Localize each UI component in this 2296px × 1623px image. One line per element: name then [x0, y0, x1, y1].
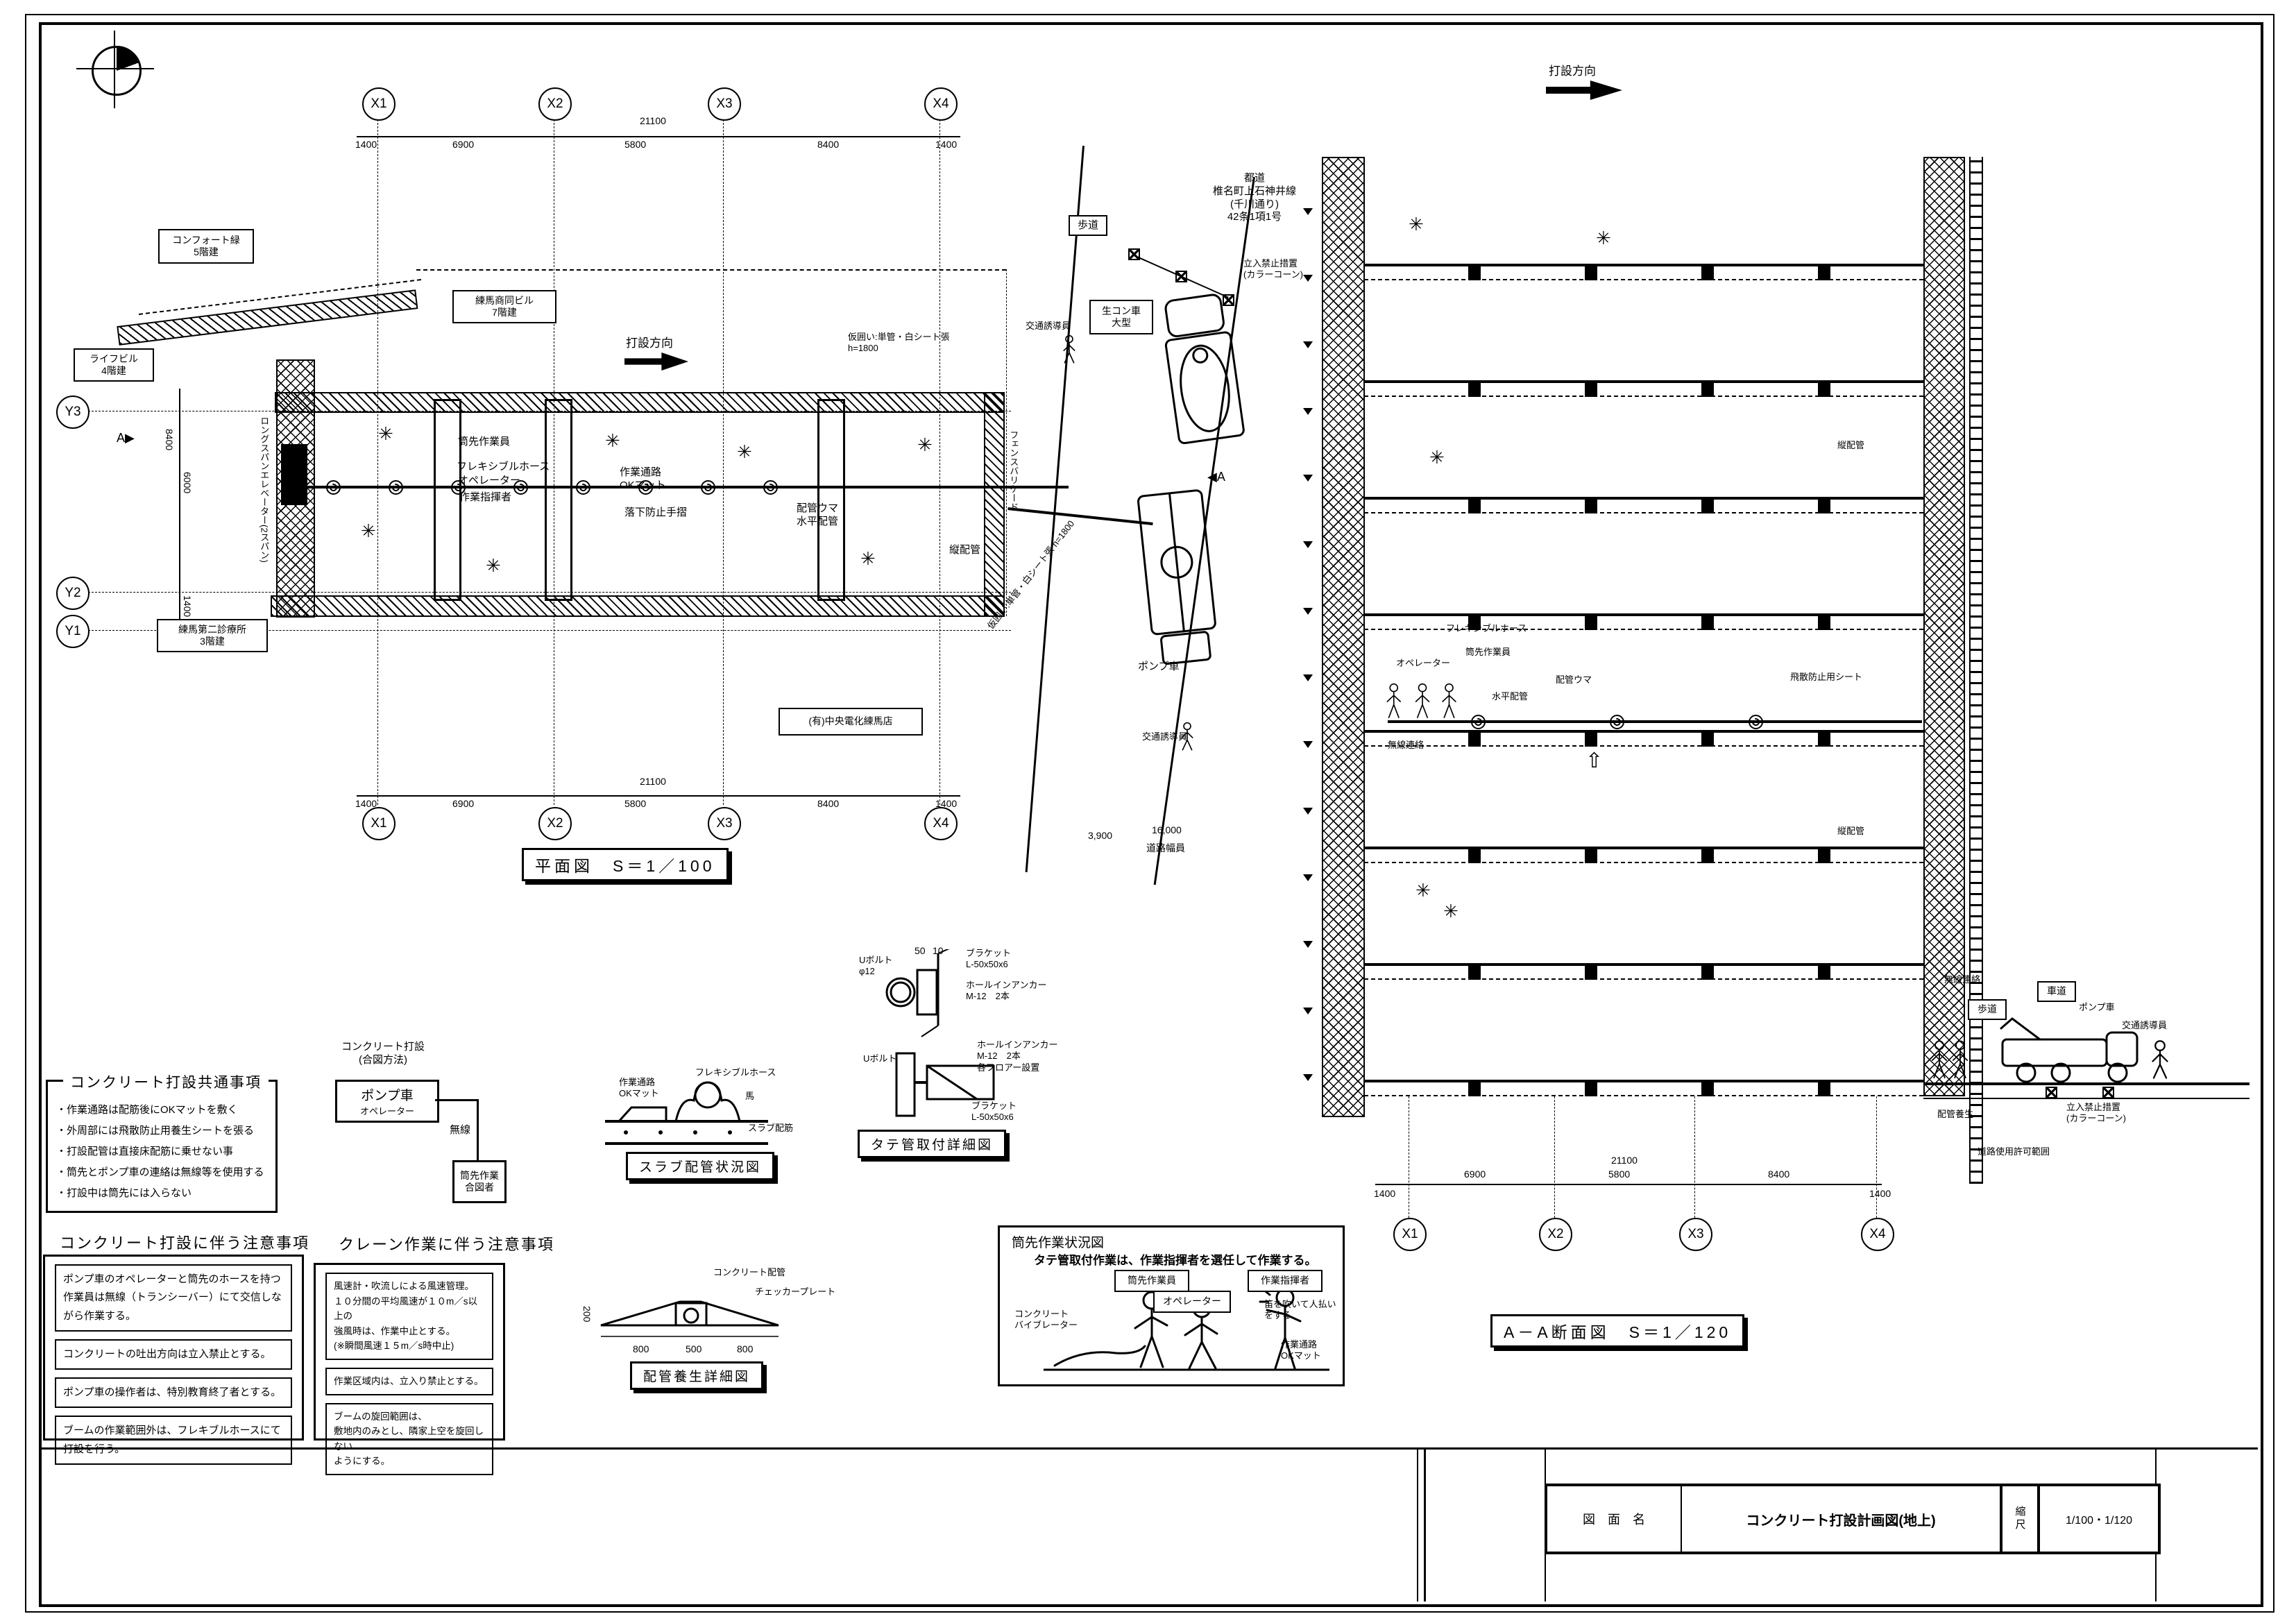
- level-mark: [1303, 341, 1313, 348]
- section-ground-line2: [1923, 1098, 2250, 1099]
- section-label-roadway: 車道: [2037, 981, 2076, 1002]
- section-label-riser1: 縦配管: [1837, 440, 1864, 451]
- road-route-label: 都道 椎名町上石神井線 (千川通り) 42条1項1号: [1213, 172, 1296, 224]
- section-dim-x1x2: 6900: [1464, 1169, 1486, 1180]
- section-dim-x2x3: 5800: [1608, 1169, 1630, 1180]
- pump-truck-plan: [1122, 481, 1237, 670]
- note-box: ポンプ車のオペレーターと筒先のホースを持つ 作業員は無線（トランシーバー）にて交…: [55, 1264, 292, 1332]
- detail-riser-anchor-lower-label: ホールインアンカー M-12 2本 各フロアー設置: [977, 1039, 1057, 1073]
- traffic-cone-icon: [1175, 271, 1187, 282]
- concrete-splash-icon: ✳: [1443, 902, 1459, 920]
- operator-tag: オペレーター: [1153, 1291, 1231, 1313]
- detail-slab-rebar-label: スラブ配筋: [748, 1123, 793, 1134]
- plan-label-pipe-horse: 配管ウマ 水平配管: [797, 502, 838, 529]
- section-scaffold-right: [1923, 157, 1965, 1096]
- level-mark: [1303, 808, 1313, 815]
- note-item: ・外周部には飛散防止用養生シートを張る: [56, 1123, 267, 1137]
- concrete-splash-icon: ✳: [737, 443, 752, 461]
- mixer-truck-label: 生コン車 大型: [1089, 300, 1153, 334]
- plan-label-riser: 縦配管: [949, 544, 980, 557]
- level-mark: [1303, 874, 1313, 881]
- plan-dim-8400: 8400: [164, 429, 175, 450]
- detail-protect-plate-label: チェッカープレート: [755, 1286, 835, 1298]
- guard-figure: [1180, 722, 1195, 752]
- note-item: ・筒先とポンプ車の連絡は無線等を使用する: [56, 1164, 267, 1179]
- note-box: コンクリートの吐出方向は立入禁止とする。: [55, 1339, 292, 1370]
- plan-label-longspan: ロングスパンエレベーター(2スパン): [258, 416, 269, 563]
- notes-crane-title: クレーン作業に伴う注意事項: [339, 1235, 554, 1255]
- notes-pour-title: コンクリート打設に伴う注意事項: [60, 1234, 309, 1253]
- section-label-sidewalk: 歩道: [1968, 999, 2007, 1020]
- plan-direction-label: 打設方向: [626, 336, 673, 350]
- north-symbol: [92, 46, 142, 96]
- slab-piping-title: スラブ配管状況図: [626, 1152, 774, 1180]
- concrete-splash-icon: ✳: [1429, 448, 1445, 466]
- plan-grid-x1-top: X1: [362, 87, 396, 121]
- detail-protect-pipe-label: コンクリート配管: [713, 1267, 785, 1278]
- section-dim-line: [1375, 1184, 1882, 1185]
- section-label-horizontal-pipe: 水平配管: [1492, 691, 1528, 702]
- section-label-operator: オペレーター: [1396, 658, 1450, 669]
- level-mark: [1303, 941, 1313, 948]
- level-mark: [1303, 1008, 1313, 1014]
- section-grid-x4: X4: [1861, 1218, 1894, 1251]
- drawing-sheet: X1 X2 X3 X4 X1 X2 X3 X4 Y3 Y2 Y1 21100 1…: [0, 0, 2296, 1623]
- level-mark: [1303, 408, 1313, 415]
- level-mark: [1303, 275, 1313, 282]
- plan-label-fence-barricade: フェンスバリケード: [1007, 430, 1019, 511]
- plan-dim-1400r-top: 1400: [935, 139, 957, 150]
- note-item: ・打設配管は直接床配筋に乗せない事: [56, 1144, 267, 1158]
- plan-dim-1400: 1400: [182, 595, 193, 617]
- pipe-protection-title: 配管養生詳細図: [630, 1361, 763, 1390]
- note-box: ブームの旋回範囲は、 敷地内のみとし、隣家上空を旋回しない ようにする。: [325, 1403, 493, 1475]
- section-scaffold-left: [1322, 157, 1365, 1117]
- plan-wall-right: [984, 392, 1005, 617]
- traffic-cone-icon: [1128, 248, 1140, 260]
- concrete-splash-icon: ✳: [1409, 215, 1424, 233]
- signal-pump-main: ポンプ車: [361, 1085, 413, 1104]
- signal-pump-box: ポンプ車 オペレーター: [335, 1080, 439, 1123]
- section-gridline-x1: [1409, 1096, 1409, 1221]
- section-dim-1400l: 1400: [1374, 1188, 1395, 1199]
- plan-site-boundary-right: [1006, 269, 1007, 616]
- level-mark: [1303, 1074, 1313, 1081]
- concrete-splash-icon: ✳: [361, 522, 376, 540]
- plan-grid-y3: Y3: [56, 396, 90, 429]
- plan-label-walkway: 作業通路 OKマット: [620, 466, 666, 493]
- plan-dim-1400l-top: 1400: [355, 139, 377, 150]
- plan-gridline-x4: [939, 119, 940, 805]
- section-label-wireless2: 無線連絡: [1944, 974, 1980, 985]
- title-block-scale-label-cell: 縮尺: [2000, 1486, 2040, 1552]
- nozzle-worker-tag: 筒先作業員: [1114, 1270, 1189, 1292]
- traffic-cone-icon: [2102, 1087, 2114, 1098]
- plan-label-nozzle-worker: 筒先作業員: [458, 436, 510, 449]
- concrete-splash-icon: ✳: [378, 425, 393, 443]
- level-mark: [1303, 541, 1313, 548]
- plan-elevator-block: [281, 444, 307, 505]
- pipe-horse-icon: [763, 480, 778, 495]
- note-item: ・打設中は筒先には入らない: [56, 1185, 267, 1200]
- plan-label-fence-top: 仮囲い:単管・白シート張 h=1800: [848, 332, 950, 355]
- section-label-pipe-horse: 配管ウマ: [1556, 674, 1592, 686]
- section-floor-slab: [1364, 264, 1923, 280]
- detail-protect-dim-b: 500: [686, 1343, 701, 1354]
- concrete-splash-icon: ✳: [1415, 881, 1431, 899]
- section-label-scatter-sheet: 飛散防止用シート: [1790, 672, 1862, 683]
- section-dim-overall: 21100: [1611, 1155, 1638, 1166]
- guard-figure-street: [2150, 1039, 2170, 1081]
- plan-dim-line-bottom: [357, 795, 960, 797]
- plan-rail-2: [545, 399, 572, 601]
- road-pump-label: ポンプ車: [1138, 661, 1180, 674]
- plan-dim-line-top: [357, 136, 960, 137]
- note-box: ポンプ車の操作者は、特別教育終了者とする。: [55, 1377, 292, 1408]
- concrete-splash-icon: ✳: [605, 432, 620, 450]
- road-dim-sidewalk: 3,900: [1088, 830, 1112, 841]
- plan-grid-x2-top: X2: [538, 87, 572, 121]
- plan-dim-overall-top: 21100: [640, 115, 666, 126]
- plan-site-boundary-top: [416, 269, 1006, 271]
- plan-grid-x4-top: X4: [924, 87, 958, 121]
- section-gridline-x4: [1876, 1096, 1877, 1221]
- title-block-scale-cell: 1/100・1/120: [2040, 1486, 2158, 1552]
- north-symbol-axis-v: [114, 31, 115, 108]
- detail-riser-dim10: 10: [933, 945, 944, 956]
- section-grid-x2: X2: [1539, 1218, 1572, 1251]
- plan-dim-line-left: [179, 389, 180, 638]
- supervisor-tag: 作業指揮者: [1248, 1270, 1323, 1292]
- road-sidewalk-label: 歩道: [1069, 215, 1107, 236]
- section-floor-slab: [1364, 847, 1923, 863]
- section-floor-slab: [1364, 380, 1923, 397]
- section-label-road-use: 道路使用許可範囲: [1978, 1146, 2050, 1157]
- plan-grid-x4-bottom: X4: [924, 807, 958, 840]
- worker-figures-section: [1384, 681, 1461, 722]
- note-box: 作業区域内は、立入り禁止とする。: [325, 1368, 493, 1395]
- pipe-horse-icon: [1610, 715, 1624, 729]
- plan-wall-top: [275, 392, 1005, 413]
- title-block-name-cell: コンクリート打設計画図(地上): [1682, 1486, 2000, 1552]
- notes-common-title: コンクリート打設共通事項: [63, 1071, 269, 1092]
- concrete-splash-icon: ✳: [917, 436, 933, 454]
- title-block-label-cell: 図 面 名: [1547, 1486, 1682, 1552]
- detail-riser-anchor-label: ホールインアンカー M-12 2本: [966, 980, 1046, 1003]
- road-width-label: 道路幅員: [1146, 841, 1185, 855]
- detail-slab-horse-label: 馬: [745, 1091, 754, 1102]
- plan-label-flex-hose: フレキシブルホース: [457, 461, 550, 474]
- plan-gridline-x3: [723, 119, 724, 805]
- plan-dim-6000: 6000: [182, 472, 193, 493]
- building-clinic: 練馬第二診療所 3階建: [157, 619, 268, 652]
- drawing-name: コンクリート打設計画図(地上): [1746, 1509, 1935, 1529]
- section-floor-slab: [1364, 963, 1923, 980]
- plan-dim-x1x2-bottom: 6900: [452, 798, 474, 809]
- plan-label-supervisor: 作業指揮者: [459, 491, 511, 504]
- plan-dim-x2x3-top: 5800: [624, 139, 646, 150]
- signal-link-label: 無線: [450, 1124, 470, 1137]
- plan-grid-y1: Y1: [56, 615, 90, 648]
- level-mark: [1303, 475, 1313, 482]
- detail-protect-dim-a: 800: [633, 1343, 649, 1354]
- notes-common-box: コンクリート打設共通事項 ・作業通路は配筋後にOKマットを敷く ・外周部には飛散…: [46, 1080, 278, 1213]
- traffic-cone-icon: [2046, 1087, 2057, 1098]
- notes-pour-box: ポンプ車のオペレーターと筒先のホースを持つ 作業員は無線（トランシーバー）にて交…: [43, 1255, 304, 1441]
- road-dim-width: 16,000: [1152, 824, 1182, 835]
- section-horizontal-pipe: [1388, 720, 1922, 723]
- note-box: ブームの作業範囲外は、フレキブルホースにて 打設を行う。: [55, 1416, 292, 1465]
- section-grid-x1: X1: [1393, 1218, 1427, 1251]
- band-divider-2: [1424, 1447, 1426, 1601]
- band-divider-1: [1417, 1447, 1418, 1601]
- section-dim-1400r: 1400: [1869, 1188, 1891, 1199]
- section-label-nozzle-worker: 筒先作業員: [1465, 647, 1511, 658]
- pipe-horse-icon: [389, 480, 403, 495]
- section-dim-x3x4: 8400: [1768, 1169, 1789, 1180]
- title-block-label: 図 面 名: [1583, 1510, 1645, 1528]
- plan-dim-x3x4-bottom: 8400: [817, 798, 839, 809]
- detail-slab-walkway-label: 作業通路 OKマット: [619, 1077, 659, 1100]
- detail-riser-bracket-lower-label: ブラケット L-50x50x6: [971, 1101, 1017, 1123]
- plan-dim-x1x2-top: 6900: [452, 139, 474, 150]
- title-block: 図 面 名 コンクリート打設計画図(地上) 縮尺 1/100・1/120: [1545, 1484, 2161, 1554]
- concrete-splash-icon: ✳: [1596, 229, 1611, 247]
- section-floor-slab: [1364, 497, 1923, 513]
- section-direction-label: 打設方向: [1549, 64, 1596, 78]
- nozzle-work-title: 筒先作業状況図: [1012, 1235, 1104, 1252]
- plan-dim-x3x4-top: 8400: [817, 139, 839, 150]
- notes-crane-box: 風速計・吹流しによる風速管理。 １０分間の平均風速が１０m／s以上の 強風時は、…: [314, 1263, 505, 1441]
- section-label-guard: 交通誘導員: [2122, 1020, 2167, 1031]
- section-label-pump: ポンプ車: [2079, 1002, 2115, 1013]
- section-label-pipe-protect: 配管養生: [1937, 1109, 1973, 1120]
- pipe-horse-icon: [576, 480, 590, 495]
- section-gridline-x3: [1694, 1096, 1695, 1221]
- section-label-no-entry: 立入禁止措置 (カラーコーン): [2066, 1102, 2126, 1125]
- section-label-flex-hose: フレキシブルホース: [1446, 623, 1527, 634]
- scale-value: 1/100・1/120: [2066, 1511, 2132, 1527]
- detail-protect-dim-c: 800: [737, 1343, 753, 1354]
- plan-grid-x3-top: X3: [708, 87, 741, 121]
- plan-label-operator: オペレーター: [458, 475, 520, 488]
- pipe-horse-icon: [1749, 715, 1763, 729]
- section-gridline-x2: [1554, 1096, 1555, 1221]
- detail-protect-dim-h: 200: [581, 1306, 593, 1322]
- signal-pump-sub: オペレーター: [360, 1104, 414, 1117]
- plan-rail-3: [817, 399, 845, 601]
- plan-title: 平面図 S＝1／100: [522, 848, 729, 881]
- level-mark: [1303, 608, 1313, 615]
- plan-grid-x3-bottom: X3: [708, 807, 741, 840]
- signal-link-h: [435, 1099, 477, 1101]
- section-grid-x3: X3: [1679, 1218, 1712, 1251]
- note-box: 風速計・吹流しによる風速管理。 １０分間の平均風速が１０m／s以上の 強風時は、…: [325, 1273, 493, 1360]
- plan-gridline-x1: [377, 119, 378, 805]
- signal-nozzle-box: 筒先作業 合図者: [452, 1160, 507, 1203]
- level-mark: [1303, 674, 1313, 681]
- nozzle-work-subtitle: タテ管取付作業は、作業指揮者を選任して作業する。: [1034, 1253, 1317, 1268]
- section-riser-pipe: [1969, 157, 1983, 1184]
- section-floor-slab: [1364, 730, 1923, 747]
- plan-grid-x1-bottom: X1: [362, 807, 396, 840]
- scale-label: 縮尺: [2013, 1506, 2027, 1532]
- north-symbol-axis-h: [76, 68, 154, 69]
- road-no-entry-label: 立入禁止措置 (カラーコーン): [1243, 258, 1303, 281]
- guard-figure: [1062, 334, 1077, 365]
- plan-dim-x2x3-bottom: 5800: [624, 798, 646, 809]
- detail-slab-flexhose-label: フレキシブルホース: [695, 1067, 776, 1078]
- detail-riser-ubolt-lower-label: Uボルト: [863, 1053, 896, 1064]
- building-nerima: 練馬商同ビル 7階建: [452, 290, 556, 323]
- road-guard1-label: 交通誘導員: [1026, 321, 1071, 332]
- building-life: ライフビル 4階建: [74, 348, 154, 382]
- signal-heading: コンクリート打設 (合図方法): [341, 1041, 425, 1067]
- plan-dim-overall-bottom: 21100: [640, 776, 666, 787]
- pipe-horse-icon: [701, 480, 715, 495]
- plan-rail-1: [434, 399, 461, 601]
- plan-label-handrail: 落下防止手摺: [624, 507, 687, 520]
- detail-riser-dim50: 50: [915, 945, 926, 956]
- plan-grid-y2: Y2: [56, 577, 90, 610]
- section-label-riser2: 縦配管: [1837, 826, 1864, 837]
- worker-figures-street: [1929, 1039, 1971, 1081]
- concrete-splash-icon: ✳: [486, 556, 501, 575]
- section-floor-slab: [1364, 1080, 1923, 1096]
- plan-horizontal-pipe: [305, 486, 1069, 488]
- signal-link-v: [477, 1099, 479, 1162]
- concrete-splash-icon: ✳: [860, 550, 876, 568]
- building-denka: (有)中央電化練馬店: [779, 708, 923, 736]
- pipe-horse-icon: [326, 480, 341, 495]
- riser-mount-title: タテ管取付詳細図: [858, 1130, 1006, 1158]
- section-title: A－A断面図 S＝1／120: [1490, 1314, 1744, 1348]
- level-mark: [1303, 741, 1313, 748]
- pipe-horse-icon: [1471, 715, 1486, 729]
- plan-wall-bottom: [271, 595, 1005, 617]
- level-mark: [1303, 208, 1313, 215]
- detail-riser-ubolt-label: Uボルト φ12: [859, 955, 892, 978]
- note-item: ・作業通路は配筋後にOKマットを敷く: [56, 1102, 267, 1116]
- plan-grid-x2-bottom: X2: [538, 807, 572, 840]
- section-cut-mark-left: A▶: [117, 430, 135, 446]
- detail-riser-bracket-label: ブラケット L-50x50x6: [966, 948, 1011, 971]
- building-comfort: コンフォート緑 5階建: [158, 229, 254, 264]
- section-up-arrow-icon: ⇧: [1585, 748, 1603, 774]
- section-label-wireless1: 無線連絡: [1388, 740, 1424, 751]
